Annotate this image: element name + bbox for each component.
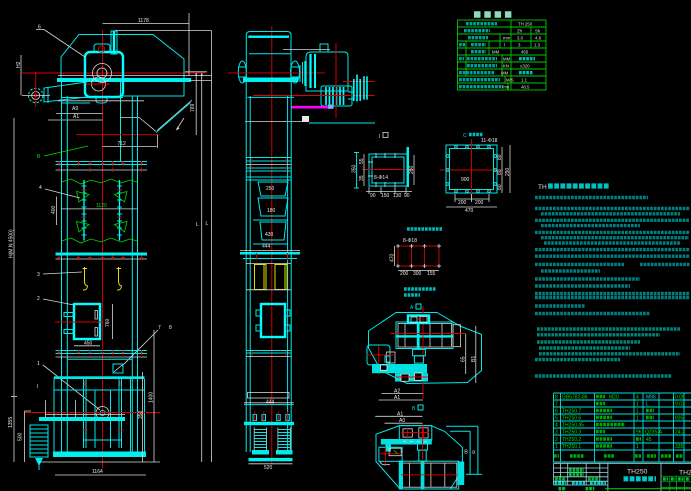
svg-text:250: 250 — [266, 186, 275, 192]
svg-text:TH2: TH2 — [679, 470, 691, 477]
svg-text:520: 520 — [264, 465, 273, 471]
svg-text:1355: 1355 — [8, 417, 14, 428]
svg-text:769: 769 — [190, 103, 196, 112]
svg-text:300: 300 — [413, 271, 422, 277]
svg-text:8: 8 — [169, 325, 172, 331]
svg-text:3: 3 — [555, 430, 558, 436]
svg-text:500: 500 — [18, 432, 24, 441]
svg-text:200: 200 — [475, 200, 484, 206]
svg-text:835: 835 — [675, 416, 684, 422]
svg-text:MM: MM — [503, 57, 511, 62]
svg-text:470: 470 — [390, 253, 396, 262]
svg-text:80: 80 — [497, 169, 503, 175]
svg-text:H(M.N 4500): H(M.N 4500) — [9, 229, 15, 258]
svg-text:I: I — [379, 134, 380, 140]
svg-text:A9: A9 — [72, 106, 78, 112]
svg-text:4: 4 — [555, 423, 558, 429]
svg-text:2: 2 — [37, 296, 40, 302]
svg-text:155: 155 — [427, 271, 436, 277]
svg-text:900: 900 — [461, 177, 470, 183]
svg-text:/mn: /mn — [502, 85, 510, 90]
svg-text:6: 6 — [555, 409, 558, 415]
svg-text:TH250.45: TH250.45 — [562, 423, 584, 429]
svg-text:1.1: 1.1 — [521, 78, 528, 83]
svg-text:Zh: Zh — [517, 29, 523, 34]
svg-text:450: 450 — [84, 341, 93, 347]
svg-text:I: I — [37, 384, 38, 390]
svg-text:444: 444 — [262, 244, 271, 250]
svg-text:L: L — [646, 402, 649, 408]
svg-text:45: 45 — [646, 437, 652, 443]
svg-text:90: 90 — [404, 193, 410, 199]
svg-text:TH250.6: TH250.6 — [562, 416, 581, 422]
svg-text:470: 470 — [465, 208, 474, 214]
svg-text:11-Φ18: 11-Φ18 — [481, 138, 498, 144]
svg-text:Sh: Sh — [535, 29, 541, 34]
svg-text:350: 350 — [138, 410, 144, 419]
svg-text:8: 8 — [555, 395, 558, 401]
svg-text:Q235-A: Q235-A — [645, 430, 663, 436]
svg-text:335: 335 — [675, 444, 684, 450]
svg-text:1: 1 — [37, 361, 40, 367]
svg-text:TH250: TH250 — [627, 469, 648, 476]
svg-text:80: 80 — [497, 154, 503, 160]
svg-text:7: 7 — [158, 325, 161, 331]
svg-text:1: 1 — [636, 409, 639, 415]
svg-text:200: 200 — [400, 271, 409, 277]
svg-text:3.0: 3.0 — [517, 36, 524, 41]
svg-text:80: 80 — [497, 184, 503, 190]
svg-text:M96: M96 — [646, 395, 656, 401]
svg-text:1164: 1164 — [92, 469, 103, 475]
svg-text:C: C — [463, 133, 467, 139]
svg-text:B1: B1 — [471, 356, 477, 362]
svg-text:B: B — [464, 450, 468, 456]
svg-text:7: 7 — [555, 402, 558, 408]
svg-text:5: 5 — [555, 416, 558, 422]
svg-text:1.3: 1.3 — [534, 43, 541, 48]
svg-text:l: l — [504, 43, 505, 48]
svg-text:130: 130 — [393, 193, 402, 199]
svg-text:TH 250: TH 250 — [518, 22, 533, 27]
svg-text:8-Φ18: 8-Φ18 — [403, 238, 417, 244]
svg-text:3: 3 — [37, 272, 40, 278]
svg-text:2: 2 — [555, 437, 558, 443]
svg-text:1120: 1120 — [96, 203, 107, 209]
svg-text:430: 430 — [265, 232, 274, 238]
svg-text:400: 400 — [51, 205, 57, 214]
svg-text:MM: MM — [492, 50, 500, 55]
svg-text:TH250.3: TH250.3 — [562, 430, 581, 436]
svg-text:1: 1 — [636, 416, 639, 422]
svg-text:150: 150 — [381, 193, 390, 199]
svg-text:1: 1 — [636, 444, 639, 450]
svg-text:MM: MM — [501, 71, 509, 76]
svg-text:L: L — [196, 222, 199, 228]
svg-text:≥320: ≥320 — [520, 64, 530, 69]
svg-text:M20: M20 — [609, 395, 619, 401]
svg-text:200: 200 — [458, 200, 467, 206]
svg-text:TH250.1: TH250.1 — [562, 444, 581, 450]
svg-text:4: 4 — [636, 395, 639, 401]
svg-text:mm: mm — [503, 36, 511, 41]
svg-text:TH250.7: TH250.7 — [562, 409, 581, 415]
svg-text:450: 450 — [521, 50, 529, 55]
svg-text:TH: TH — [538, 184, 547, 191]
svg-text:35: 35 — [359, 175, 365, 181]
svg-text:GB5782-86: GB5782-86 — [562, 395, 588, 401]
svg-text:180: 180 — [267, 208, 276, 214]
svg-text:24.2: 24.2 — [675, 430, 685, 436]
svg-text:48.5: 48.5 — [521, 85, 530, 90]
svg-text:TH250.2: TH250.2 — [562, 437, 581, 443]
svg-text:280: 280 — [409, 165, 415, 174]
svg-text:1400: 1400 — [149, 392, 155, 403]
svg-text:M/S: M/S — [506, 78, 514, 83]
svg-text:0.09: 0.09 — [675, 395, 685, 401]
svg-text:1: 1 — [636, 402, 639, 408]
svg-text:760: 760 — [105, 318, 111, 327]
svg-text:55: 55 — [359, 158, 365, 164]
svg-text:A1: A1 — [73, 114, 79, 120]
svg-text:L: L — [206, 221, 209, 227]
svg-text:4.8: 4.8 — [535, 36, 542, 41]
svg-text:65: 65 — [461, 356, 467, 362]
svg-text:96: 96 — [636, 430, 642, 436]
svg-text:8-Φ14: 8-Φ14 — [374, 175, 388, 181]
svg-text:350: 350 — [352, 164, 358, 173]
svg-text:290: 290 — [505, 167, 511, 176]
svg-text:4: 4 — [39, 185, 42, 191]
svg-text:KN: KN — [503, 64, 509, 69]
svg-text:H2: H2 — [16, 61, 22, 68]
svg-text:9.03: 9.03 — [675, 402, 685, 408]
svg-text:90: 90 — [370, 193, 376, 199]
svg-text:1: 1 — [555, 444, 558, 450]
